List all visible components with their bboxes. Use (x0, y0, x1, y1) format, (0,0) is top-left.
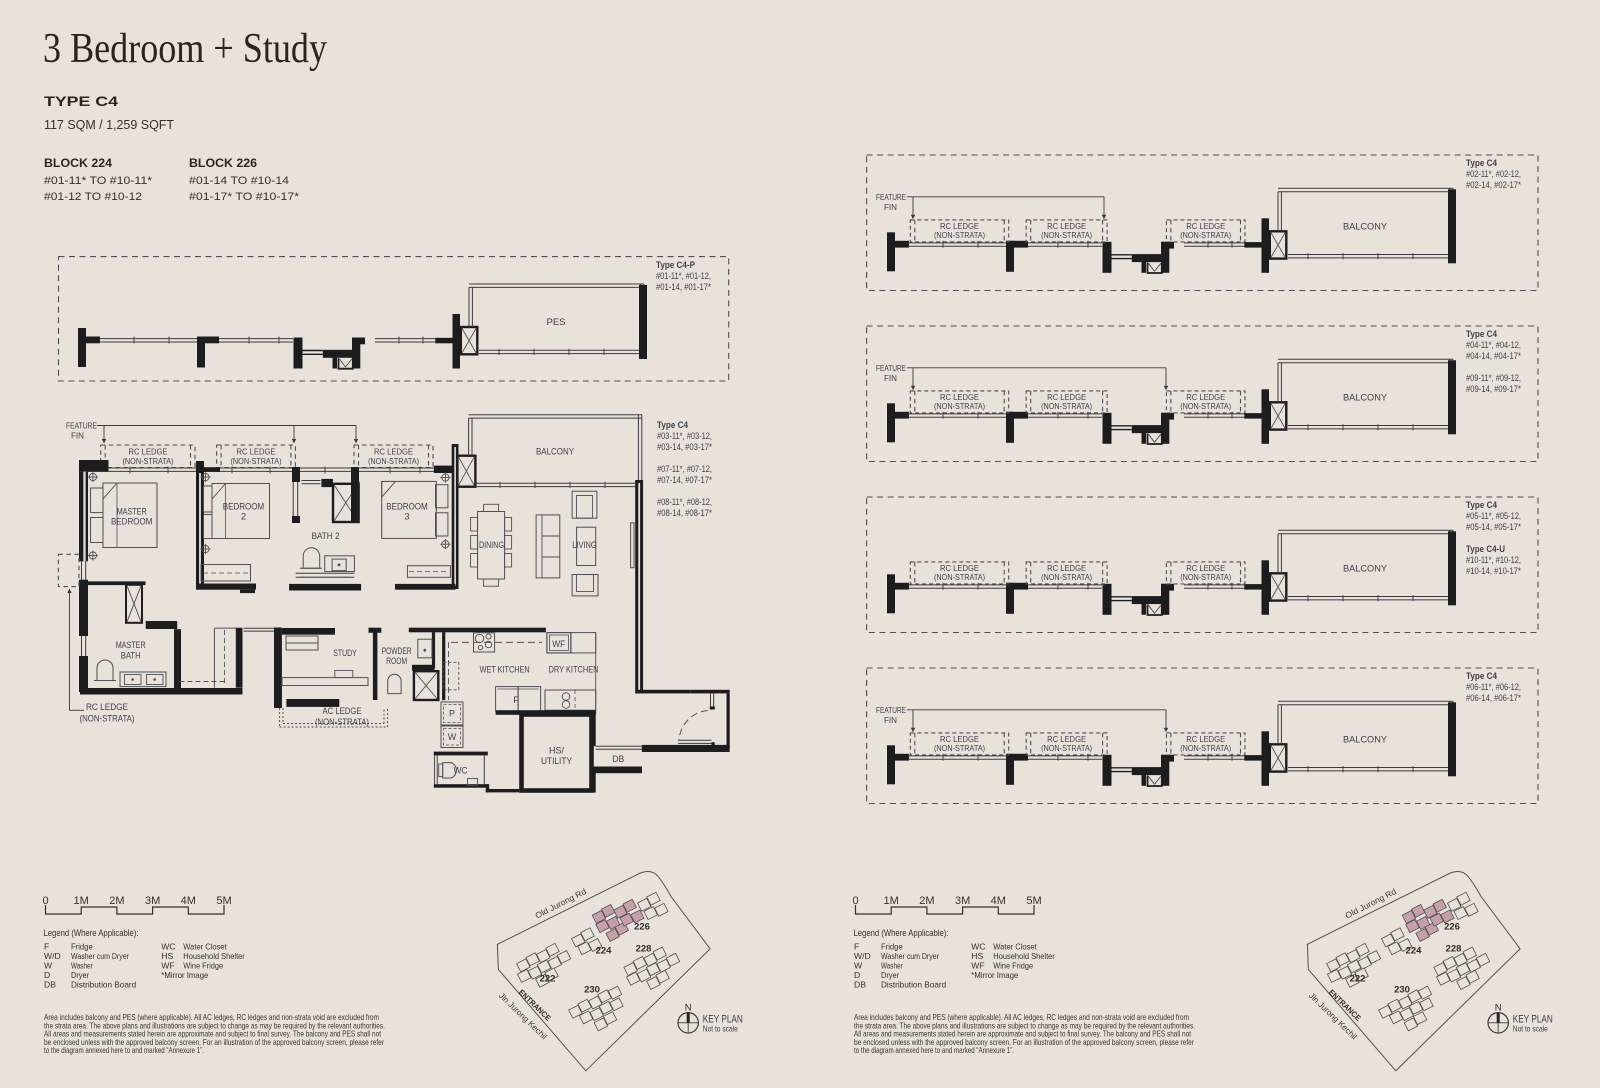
svg-text:Dryer: Dryer (71, 970, 89, 980)
svg-text:DINING: DINING (479, 539, 504, 550)
svg-text:Washer cum Dryer: Washer cum Dryer (881, 951, 939, 961)
svg-text:226: 226 (634, 922, 650, 933)
svg-text:WET KITCHEN: WET KITCHEN (480, 665, 530, 675)
svg-text:Legend (Where Applicable):: Legend (Where Applicable): (854, 928, 949, 938)
svg-text:Not to scale: Not to scale (703, 1025, 738, 1034)
svg-text:POWDER: POWDER (382, 646, 412, 656)
svg-text:#01-12 TO #10-12: #01-12 TO #10-12 (44, 191, 142, 203)
svg-text:(NON-STRATA): (NON-STRATA) (80, 714, 135, 724)
svg-text:FEATURE: FEATURE (876, 193, 906, 202)
svg-text:Wine Fridge: Wine Fridge (993, 961, 1033, 971)
svg-text:#10-11*, #10-12,: #10-11*, #10-12, (1466, 555, 1521, 565)
svg-text:3 Bedroom + Study: 3 Bedroom + Study (43, 26, 327, 72)
svg-text:Washer: Washer (881, 961, 903, 971)
svg-text:W: W (854, 961, 863, 971)
svg-text:(NON-STRATA): (NON-STRATA) (1041, 401, 1092, 411)
svg-text:FIN: FIN (884, 374, 897, 383)
svg-text:KEY PLAN: KEY PLAN (703, 1013, 743, 1025)
svg-text:to the diagram annexed here to: to the diagram annexed here to and marke… (854, 1046, 1014, 1055)
svg-text:DRY KITCHEN: DRY KITCHEN (549, 665, 599, 675)
svg-text:228: 228 (636, 944, 652, 955)
svg-text:#05-11*, #05-12,: #05-11*, #05-12, (1466, 511, 1521, 521)
svg-text:F: F (44, 942, 49, 952)
svg-text:BATH 2: BATH 2 (312, 530, 340, 541)
svg-text:Washer: Washer (71, 961, 93, 971)
svg-text:BLOCK 226: BLOCK 226 (189, 156, 257, 170)
svg-text:228: 228 (1446, 944, 1462, 955)
svg-text:WC: WC (971, 942, 985, 952)
svg-text:#10-14, #10-17*: #10-14, #10-17* (1466, 566, 1521, 576)
svg-text:Type C4: Type C4 (1466, 500, 1497, 510)
svg-text:Washer cum Dryer: Washer cum Dryer (71, 951, 129, 961)
svg-text:BALCONY: BALCONY (1343, 562, 1388, 573)
svg-text:2: 2 (241, 511, 246, 522)
svg-text:(NON-STRATA): (NON-STRATA) (934, 401, 985, 411)
svg-text:1M: 1M (884, 895, 899, 907)
svg-text:RC LEDGE: RC LEDGE (86, 702, 128, 712)
svg-text:224: 224 (596, 946, 613, 957)
svg-text:117 SQM / 1,259 SQFT: 117 SQM / 1,259 SQFT (44, 118, 174, 132)
svg-text:FEATURE: FEATURE (876, 706, 906, 715)
svg-text:(NON-STRATA): (NON-STRATA) (1180, 401, 1231, 411)
svg-text:#01-14 TO #10-14: #01-14 TO #10-14 (189, 175, 289, 187)
svg-text:*Mirror Image: *Mirror Image (971, 970, 1018, 980)
svg-text:(NON-STRATA): (NON-STRATA) (1041, 230, 1092, 240)
svg-text:Distribution Board: Distribution Board (71, 980, 136, 990)
svg-text:#08-14, #08-17*: #08-14, #08-17* (657, 508, 712, 518)
svg-text:#04-14, #04-17*: #04-14, #04-17* (1466, 351, 1521, 361)
svg-text:PES: PES (547, 316, 566, 327)
svg-text:BATH: BATH (121, 649, 141, 660)
svg-text:Household Shelter: Household Shelter (183, 951, 245, 961)
svg-text:HS: HS (971, 951, 983, 961)
svg-text:N: N (1495, 1003, 1502, 1014)
svg-text:3: 3 (404, 510, 409, 521)
svg-text:ROOM: ROOM (386, 656, 407, 666)
svg-text:#06-11*, #06-12,: #06-11*, #06-12, (1466, 682, 1521, 692)
svg-text:Type C4: Type C4 (1466, 671, 1497, 681)
svg-text:#09-11*, #09-12,: #09-11*, #09-12, (1466, 373, 1521, 383)
svg-text:KEY PLAN: KEY PLAN (1513, 1013, 1553, 1025)
svg-text:BLOCK 224: BLOCK 224 (44, 156, 112, 170)
svg-text:(NON-STRATA): (NON-STRATA) (368, 456, 419, 466)
svg-text:D: D (44, 970, 50, 980)
svg-text:DB: DB (854, 980, 866, 990)
svg-text:(NON-STRATA): (NON-STRATA) (934, 743, 985, 753)
svg-text:W/D: W/D (854, 951, 871, 961)
svg-text:#07-11*, #07-12,: #07-11*, #07-12, (657, 464, 712, 474)
svg-text:Wine Fridge: Wine Fridge (183, 961, 223, 971)
svg-text:(NON-STRATA): (NON-STRATA) (1180, 230, 1231, 240)
svg-text:#02-11*, #02-12,: #02-11*, #02-12, (1466, 169, 1521, 179)
svg-text:222: 222 (540, 974, 556, 985)
svg-text:Type C4: Type C4 (1466, 329, 1497, 339)
svg-text:Type C4: Type C4 (657, 420, 688, 430)
svg-text:3M: 3M (145, 895, 160, 907)
svg-text:#01-11*, #01-12,: #01-11*, #01-12, (656, 271, 711, 281)
svg-text:FEATURE: FEATURE (876, 364, 906, 373)
svg-text:(NON-STRATA): (NON-STRATA) (123, 456, 174, 466)
svg-text:2M: 2M (109, 895, 124, 907)
svg-text:F: F (854, 942, 859, 952)
svg-text:#06-14, #06-17*: #06-14, #06-17* (1466, 693, 1521, 703)
svg-text:Fridge: Fridge (71, 942, 93, 952)
svg-text:*Mirror Image: *Mirror Image (161, 970, 208, 980)
svg-text:#07-14, #07-17*: #07-14, #07-17* (657, 475, 712, 485)
svg-text:WF: WF (971, 961, 984, 971)
svg-text:226: 226 (1444, 922, 1460, 933)
svg-text:AC LEDGE: AC LEDGE (323, 706, 362, 716)
svg-text:(NON-STRATA): (NON-STRATA) (315, 717, 369, 727)
svg-text:3M: 3M (955, 895, 970, 907)
svg-text:4M: 4M (181, 895, 196, 907)
svg-text:WF: WF (552, 639, 565, 649)
svg-text:WF: WF (161, 961, 174, 971)
svg-text:230: 230 (1394, 985, 1410, 996)
svg-text:Water Closet: Water Closet (993, 942, 1037, 952)
svg-text:1M: 1M (74, 895, 89, 907)
svg-text:W/D: W/D (44, 951, 61, 961)
svg-text:Not to scale: Not to scale (1513, 1025, 1548, 1034)
svg-text:#01-11* TO #10-11*: #01-11* TO #10-11* (44, 175, 153, 187)
svg-text:F: F (513, 695, 519, 705)
svg-text:(NON-STRATA): (NON-STRATA) (934, 230, 985, 240)
svg-text:(NON-STRATA): (NON-STRATA) (1041, 743, 1092, 753)
svg-text:Household Shelter: Household Shelter (993, 951, 1055, 961)
svg-text:#08-11*, #08-12,: #08-11*, #08-12, (657, 497, 712, 507)
svg-text:#01-14, #01-17*: #01-14, #01-17* (656, 282, 711, 292)
svg-text:BALCONY: BALCONY (1343, 391, 1388, 402)
svg-text:Distribution Board: Distribution Board (881, 980, 946, 990)
svg-text:#04-11*, #04-12,: #04-11*, #04-12, (1466, 340, 1521, 350)
svg-text:UTILITY: UTILITY (541, 756, 572, 766)
svg-text:N: N (685, 1003, 692, 1014)
svg-text:FEATURE: FEATURE (66, 422, 97, 431)
svg-text:(NON-STRATA): (NON-STRATA) (1180, 743, 1231, 753)
svg-text:#03-11*, #03-12,: #03-11*, #03-12, (657, 431, 712, 441)
svg-text:#05-14, #05-17*: #05-14, #05-17* (1466, 522, 1521, 532)
svg-text:224: 224 (1406, 946, 1423, 957)
svg-text:DB: DB (612, 754, 624, 764)
svg-text:Fridge: Fridge (881, 942, 903, 952)
svg-text:Type C4: Type C4 (1466, 158, 1497, 168)
svg-text:WC: WC (454, 766, 468, 776)
svg-text:BALCONY: BALCONY (536, 446, 575, 457)
svg-text:D: D (854, 970, 860, 980)
svg-text:HS: HS (161, 951, 173, 961)
svg-text:HS/: HS/ (549, 746, 564, 756)
svg-text:4M: 4M (991, 895, 1006, 907)
svg-text:#02-14, #02-17*: #02-14, #02-17* (1466, 180, 1521, 190)
svg-text:Type C4-P: Type C4-P (656, 260, 695, 270)
svg-text:Legend (Where Applicable):: Legend (Where Applicable): (44, 928, 139, 938)
svg-text:222: 222 (1350, 974, 1366, 985)
svg-text:#09-14, #09-17*: #09-14, #09-17* (1466, 384, 1521, 394)
svg-text:W: W (44, 961, 53, 971)
svg-text:(NON-STRATA): (NON-STRATA) (1041, 572, 1092, 582)
svg-text:Water Closet: Water Closet (183, 942, 227, 952)
svg-text:Type C4-U: Type C4-U (1466, 544, 1505, 554)
svg-text:(NON-STRATA): (NON-STRATA) (1180, 572, 1231, 582)
svg-text:FIN: FIN (884, 716, 897, 725)
svg-text:LIVING: LIVING (572, 539, 597, 550)
svg-text:BALCONY: BALCONY (1343, 220, 1388, 231)
svg-text:FIN: FIN (884, 203, 897, 212)
svg-text:2M: 2M (919, 895, 934, 907)
svg-text:TYPE C4: TYPE C4 (44, 93, 118, 109)
svg-text:P: P (449, 709, 455, 719)
svg-text:(NON-STRATA): (NON-STRATA) (934, 572, 985, 582)
svg-text:Dryer: Dryer (881, 970, 899, 980)
svg-text:to the diagram annexed here to: to the diagram annexed here to and marke… (44, 1046, 204, 1055)
svg-text:DB: DB (44, 980, 56, 990)
svg-text:BALCONY: BALCONY (1343, 733, 1388, 744)
svg-text:STUDY: STUDY (333, 647, 357, 658)
svg-text:230: 230 (584, 985, 600, 996)
svg-text:FIN: FIN (71, 432, 84, 441)
svg-text:WC: WC (161, 942, 175, 952)
svg-text:#03-14, #03-17*: #03-14, #03-17* (657, 442, 712, 452)
svg-text:BEDROOM: BEDROOM (111, 515, 153, 526)
svg-text:(NON-STRATA): (NON-STRATA) (231, 456, 282, 466)
svg-text:W: W (448, 732, 457, 742)
svg-text:#01-17* TO #10-17*: #01-17* TO #10-17* (189, 191, 300, 203)
